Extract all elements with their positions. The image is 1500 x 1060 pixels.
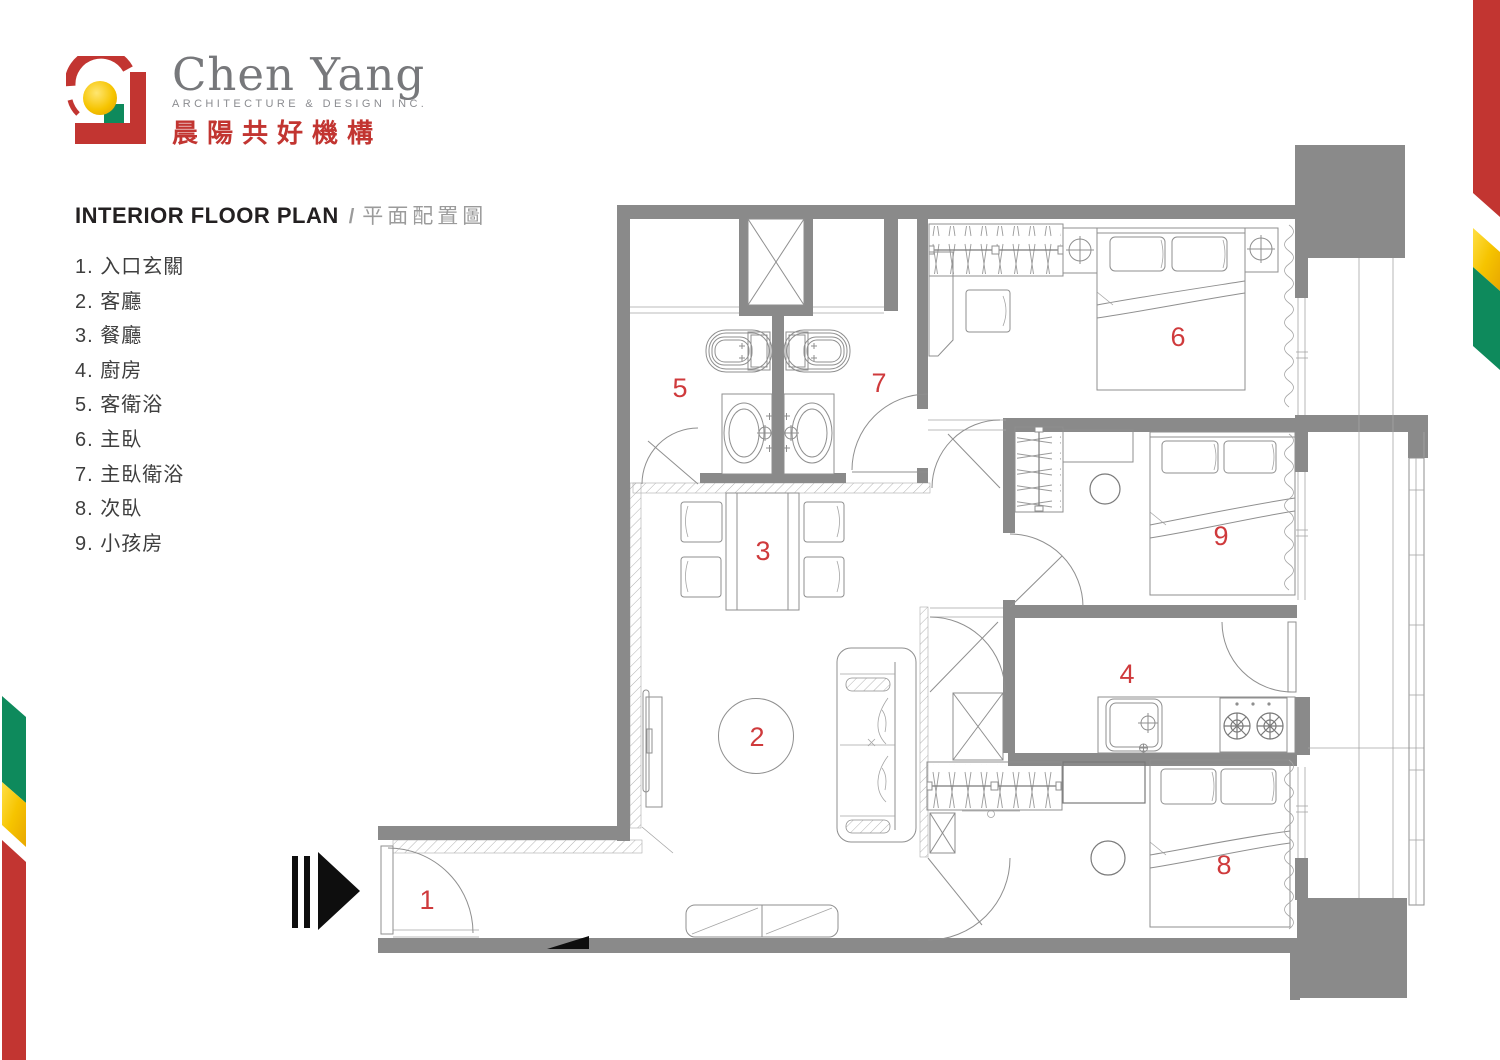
entry-arrow-icon <box>292 852 360 930</box>
door-bath-7 <box>852 394 928 472</box>
title-en: INTERIOR FLOOR PLAN <box>75 203 339 228</box>
wardrobe-icon <box>929 224 1063 276</box>
bedroom-9-furniture <box>1015 427 1295 595</box>
room-number-label: 7 <box>871 368 886 398</box>
brand-name-zh: 晨陽共好機構 <box>172 113 427 150</box>
walls <box>378 145 1428 1000</box>
legend-item: 6. 主臥 <box>75 423 184 458</box>
door-balcony <box>1222 622 1296 692</box>
bedroom-8-furniture <box>927 760 1290 927</box>
legend-item: 5. 客衛浴 <box>75 388 184 423</box>
legend-item: 1. 入口玄關 <box>75 250 184 285</box>
bed-icon <box>1097 228 1245 390</box>
room-number-label: 5 <box>672 373 687 403</box>
room-number-label: 4 <box>1119 659 1134 689</box>
elevator-shaft <box>748 219 804 305</box>
bedroom-6-furniture <box>929 224 1278 390</box>
curtains <box>1285 225 1294 929</box>
page-title: INTERIOR FLOOR PLAN/平面配置圖 <box>75 200 487 230</box>
brand-name-en: Chen Yang <box>172 52 427 98</box>
kitchen-sink-icon <box>1106 699 1162 753</box>
wardrobe-icon <box>927 762 1062 810</box>
sofa-icon <box>837 648 916 842</box>
chair-icon <box>966 290 1010 332</box>
title-zh: 平面配置圖 <box>362 205 487 228</box>
lamp-icon <box>1247 235 1275 263</box>
stool-icon <box>1090 474 1120 504</box>
legend-item: 3. 餐廳 <box>75 319 184 354</box>
kitchen-furniture <box>1098 697 1295 753</box>
desk <box>1063 430 1133 462</box>
room-number-label: 8 <box>1216 850 1231 880</box>
room-number-label: 9 <box>1213 521 1228 551</box>
brand-tagline: ARCHITECTURE & DESIGN INC. <box>172 98 427 110</box>
room-number-label: 2 <box>749 722 764 752</box>
bed-icon <box>1150 760 1290 927</box>
curtain-icon <box>1285 760 1294 929</box>
door-room-9 <box>1010 534 1083 607</box>
legend-item: 4. 廚房 <box>75 354 184 389</box>
bed-icon <box>1150 432 1295 595</box>
stove-icon <box>1220 698 1287 752</box>
ribbon-top-right <box>1473 0 1500 370</box>
vanity-sink-icon <box>783 394 834 474</box>
logo-mark-icon <box>66 56 150 150</box>
page: 123456789 Chen Yang ARCHITECTURE & DESIG… <box>0 0 1500 1060</box>
kitchen-counter <box>1098 697 1295 753</box>
door-bath-5 <box>642 428 698 484</box>
room-legend: 1. 入口玄關2. 客廳3. 餐廳4. 廚房5. 客衛浴6. 主臥7. 主臥衛浴… <box>75 250 184 561</box>
tv-icon <box>643 690 662 807</box>
windows-balcony <box>1296 258 1424 905</box>
door-room-8 <box>928 858 1010 940</box>
toilet-icon <box>706 330 772 372</box>
wardrobe-icon <box>1015 427 1063 512</box>
room-number-label: 3 <box>755 536 770 566</box>
curtain-icon <box>1285 225 1294 407</box>
toilet-icon <box>784 330 850 372</box>
legend-item: 2. 客廳 <box>75 285 184 320</box>
stool-icon <box>1091 841 1125 875</box>
room-number-label: 1 <box>419 885 434 915</box>
legend-item: 7. 主臥衛浴 <box>75 458 184 493</box>
vanity-sink-icon <box>722 394 773 474</box>
legend-item: 8. 次臥 <box>75 492 184 527</box>
logo: Chen Yang ARCHITECTURE & DESIGN INC. 晨陽共… <box>66 52 486 172</box>
title-separator: / <box>339 206 363 228</box>
door-kitchen-corridor <box>930 617 1005 692</box>
tv-cabinet <box>686 905 838 937</box>
ribbon-bottom-left <box>2 696 26 1060</box>
desk <box>1063 762 1145 803</box>
living-dining-furniture <box>643 493 916 937</box>
room-number-label: 6 <box>1170 322 1185 352</box>
legend-item: 9. 小孩房 <box>75 527 184 562</box>
lamp-icon <box>1066 236 1094 264</box>
